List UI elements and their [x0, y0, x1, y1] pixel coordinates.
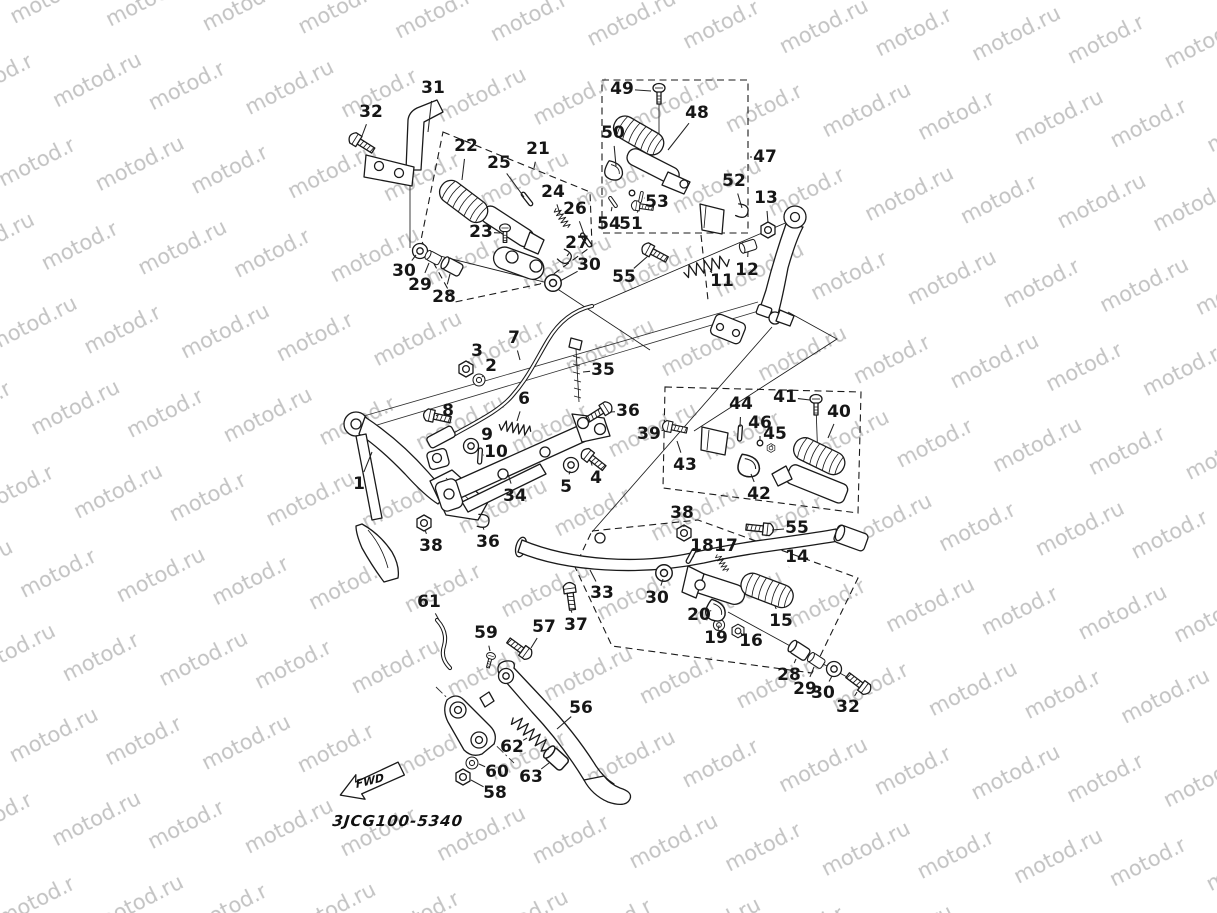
- part-label-47: 47: [753, 147, 777, 167]
- part-label-8: 8: [442, 401, 454, 421]
- part-label-53: 53: [645, 192, 669, 212]
- part-label-57: 57: [532, 617, 556, 637]
- leader-line-51: [637, 211, 638, 213]
- part-label-17: 17: [714, 536, 738, 556]
- part-label-4: 4: [590, 468, 602, 488]
- part-label-15: 15: [769, 611, 793, 631]
- part-label-59: 59: [474, 623, 498, 643]
- part-label-52: 52: [722, 171, 746, 191]
- nut-38: [417, 515, 431, 531]
- part-label-62: 62: [500, 737, 524, 757]
- diagram-canvas: motod.ru motod.ru: [0, 0, 1217, 913]
- leader-line-35: [583, 371, 590, 372]
- part-label-58: 58: [483, 783, 507, 803]
- leader-line-18: [693, 556, 694, 557]
- washer-5: [564, 458, 579, 473]
- part-label-36a: 36: [616, 401, 640, 421]
- part-label-49: 49: [610, 79, 634, 99]
- part-label-48: 48: [685, 103, 709, 123]
- pin-44: [737, 425, 742, 441]
- bracket-52: [700, 204, 724, 234]
- nut-58: [456, 769, 470, 785]
- washer-60: [466, 757, 478, 769]
- part-label-44: 44: [729, 394, 753, 414]
- part-label-21: 21: [526, 139, 550, 159]
- bolt-46: [757, 440, 763, 446]
- part-label-55b: 55: [785, 518, 809, 538]
- part-label-43: 43: [673, 455, 697, 475]
- part-label-32b: 32: [836, 697, 860, 717]
- part-label-38b: 38: [670, 503, 694, 523]
- part-label-55a: 55: [612, 267, 636, 287]
- drawing-code: 3JCG100-5340: [332, 812, 464, 830]
- nut-38-rear: [677, 525, 691, 541]
- part-label-29a: 29: [408, 275, 432, 295]
- part-label-14: 14: [785, 547, 809, 567]
- part-label-3: 3: [471, 341, 483, 361]
- part-label-38a: 38: [419, 536, 443, 556]
- part-label-31: 31: [421, 78, 445, 98]
- part-label-22: 22: [454, 136, 478, 156]
- part-label-30c: 30: [645, 588, 669, 608]
- washer-9: [464, 439, 479, 454]
- part-label-45: 45: [763, 424, 787, 444]
- part-label-11: 11: [710, 271, 734, 291]
- part-label-41: 41: [773, 387, 797, 407]
- part-label-37: 37: [564, 615, 588, 635]
- part-label-60: 60: [485, 762, 509, 782]
- part-label-16: 16: [739, 631, 763, 651]
- part-label-32a: 32: [359, 102, 383, 122]
- leader-line-2: [482, 376, 483, 377]
- part-label-51: 51: [619, 214, 643, 234]
- washer-30-right: [827, 662, 842, 677]
- part-label-6: 6: [518, 389, 530, 409]
- pin-10: [477, 448, 482, 464]
- leader-line-54: [611, 207, 612, 211]
- part-label-26: 26: [563, 199, 587, 219]
- part-label-23: 23: [469, 222, 493, 242]
- part-label-20: 20: [687, 605, 711, 625]
- part-label-54: 54: [597, 214, 621, 234]
- part-label-30b: 30: [577, 255, 601, 275]
- part-label-12: 12: [735, 260, 759, 280]
- leader-line-39: [662, 430, 664, 431]
- part-label-61: 61: [417, 592, 441, 612]
- part-label-19: 19: [704, 628, 728, 648]
- nut-13: [761, 222, 775, 238]
- part-label-33: 33: [590, 583, 614, 603]
- part-label-63: 63: [519, 767, 543, 787]
- washer-30-mid: [545, 275, 562, 292]
- washer-30-rear: [656, 565, 673, 582]
- part-label-1: 1: [353, 474, 365, 494]
- part-label-40: 40: [827, 402, 851, 422]
- part-label-39: 39: [637, 424, 661, 444]
- ball-53: [629, 190, 635, 196]
- part-label-35: 35: [591, 360, 615, 380]
- part-label-42: 42: [747, 484, 771, 504]
- part-label-18: 18: [690, 536, 714, 556]
- nut-3: [459, 361, 473, 377]
- part-label-50: 50: [601, 123, 625, 143]
- part-label-2: 2: [485, 356, 497, 376]
- part-label-10: 10: [484, 442, 508, 462]
- part-label-13: 13: [754, 188, 778, 208]
- part-label-24: 24: [541, 182, 565, 202]
- part-label-7: 7: [508, 328, 520, 348]
- part-label-30d: 30: [811, 683, 835, 703]
- part-label-56: 56: [569, 698, 593, 718]
- nut-45: [767, 444, 775, 453]
- part-label-28a: 28: [432, 287, 456, 307]
- part-label-34: 34: [503, 486, 527, 506]
- part-label-25: 25: [487, 153, 511, 173]
- part-label-27: 27: [565, 233, 589, 253]
- parts-diagram-page: motod.ru motod.ru: [0, 0, 1217, 913]
- part-label-36b: 36: [476, 532, 500, 552]
- washer-2: [473, 374, 485, 386]
- part-label-5: 5: [560, 477, 572, 497]
